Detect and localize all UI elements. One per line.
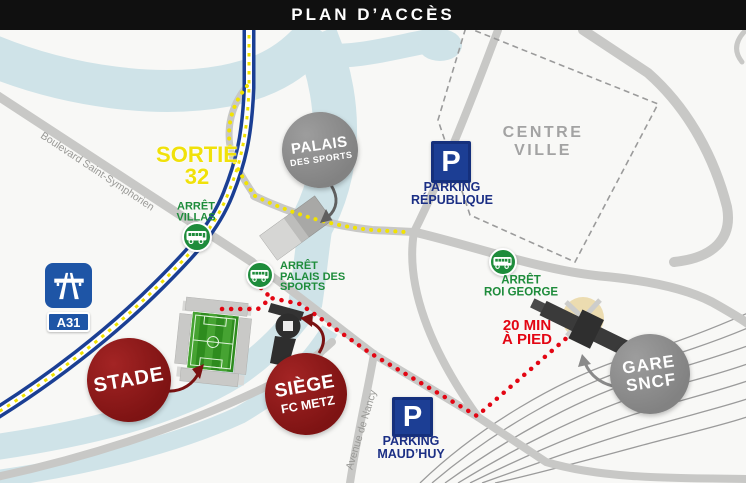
page-title: PLAN D’ACCÈS <box>291 5 455 25</box>
bus-stop-roi-george <box>489 248 517 276</box>
bus-icon <box>186 230 208 244</box>
motorway-icon <box>45 263 92 308</box>
motorway-exit-label: SORTIE 32 <box>156 144 238 188</box>
parking-republique-label: PARKING RÉPUBLIQUE <box>411 181 493 207</box>
road-top-right-arc <box>737 32 744 62</box>
parking-republique-icon: P <box>431 141 471 183</box>
parking-symbol: P <box>441 146 460 179</box>
parking-symbol: P <box>403 401 422 434</box>
bus-stop-palais-des-sports <box>246 261 274 289</box>
bus-stop-villas <box>182 222 212 252</box>
bus-icon <box>250 269 270 282</box>
motorway-number-sign: A31 <box>47 312 90 332</box>
bus-stop-roi-george-label: ARRÊT ROI GEORGE <box>484 276 558 299</box>
map-canvas: Boulevard Saint-Symphorien Avenue de Nan… <box>0 30 746 483</box>
bus-stop-palais-label: ARRÊT PALAIS DES SPORTS <box>280 261 345 293</box>
title-bar: PLAN D’ACCÈS <box>0 0 746 30</box>
plan-acces-map: PLAN D’ACCÈS <box>0 0 746 483</box>
walk-time-note: 20 MIN À PIED <box>502 319 552 347</box>
bus-stop-villas-label: ARRÊT VILLAS <box>176 202 215 223</box>
road-northeast <box>583 30 728 262</box>
motorway-glyph <box>51 268 87 304</box>
road-vertical <box>412 232 478 417</box>
centre-ville-label: CENTRE VILLE <box>503 124 584 160</box>
bus-icon <box>493 256 513 269</box>
exit-name: SORTIE <box>156 144 238 166</box>
motorway-number: A31 <box>57 315 81 330</box>
exit-number: 32 <box>156 166 238 188</box>
parking-maudhuy-icon: P <box>392 397 433 437</box>
parking-maudhuy-label: PARKING MAUD’HUY <box>377 435 444 461</box>
